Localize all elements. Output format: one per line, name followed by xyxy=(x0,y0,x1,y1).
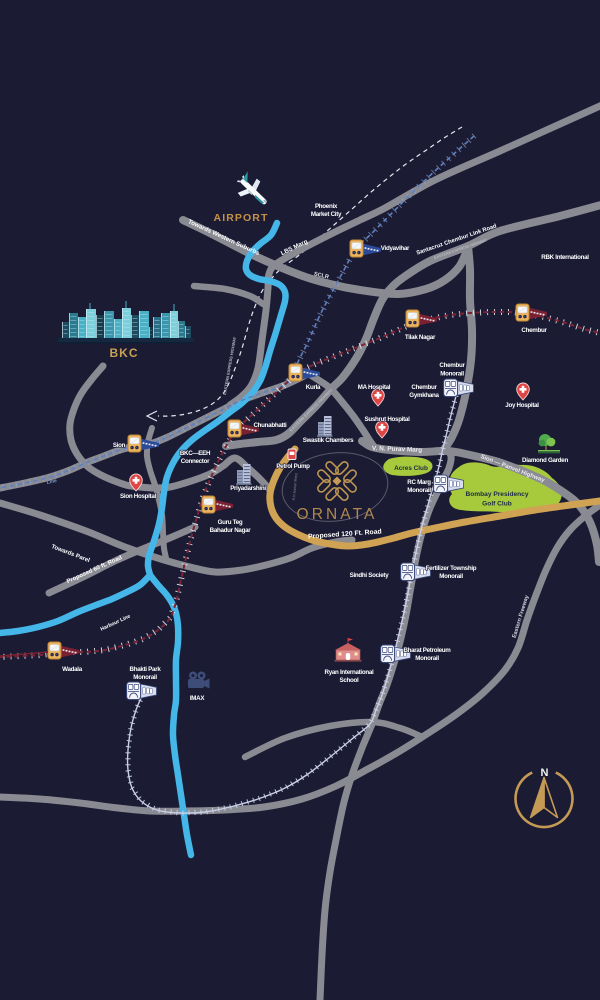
svg-text:ORNATA: ORNATA xyxy=(297,506,378,523)
svg-text:Phoenix: Phoenix xyxy=(315,203,338,210)
svg-text:Bahadur Nagar: Bahadur Nagar xyxy=(210,527,252,534)
svg-text:Swastik Chambers: Swastik Chambers xyxy=(303,437,354,444)
svg-text:N: N xyxy=(541,767,549,779)
svg-text:Chembur: Chembur xyxy=(521,327,547,334)
svg-text:Tilak Nagar: Tilak Nagar xyxy=(405,334,436,341)
svg-text:Monorail: Monorail xyxy=(407,487,431,494)
svg-text:Monorail: Monorail xyxy=(440,371,464,378)
svg-text:Sindhi Society: Sindhi Society xyxy=(350,572,390,579)
svg-text:RBK International: RBK International xyxy=(541,254,589,261)
svg-text:Chembur: Chembur xyxy=(411,384,437,391)
svg-text:Bhakti Park: Bhakti Park xyxy=(130,666,162,673)
svg-text:Ryan International: Ryan International xyxy=(325,669,374,676)
svg-text:Monorail: Monorail xyxy=(133,674,157,681)
svg-text:Priyadarshini: Priyadarshini xyxy=(230,485,266,492)
svg-text:Chunabhatti: Chunabhatti xyxy=(253,422,287,429)
svg-text:Gymkhana: Gymkhana xyxy=(409,392,439,399)
svg-text:RC Marg: RC Marg xyxy=(407,479,431,486)
svg-text:Fertilizer Township: Fertilizer Township xyxy=(426,565,477,572)
svg-text:Sushrut Hospital: Sushrut Hospital xyxy=(364,416,410,423)
svg-text:Monorail: Monorail xyxy=(439,573,463,580)
svg-text:Golf Club: Golf Club xyxy=(482,501,512,508)
svg-text:Diamond Garden: Diamond Garden xyxy=(522,457,568,464)
svg-text:School: School xyxy=(340,677,360,684)
svg-text:Joy Hospital: Joy Hospital xyxy=(505,402,539,409)
svg-text:AIRPORT: AIRPORT xyxy=(214,212,269,224)
svg-text:IMAX: IMAX xyxy=(190,695,206,702)
svg-text:Connector: Connector xyxy=(181,458,210,465)
svg-text:Wadala: Wadala xyxy=(62,666,83,673)
svg-text:Acres Club: Acres Club xyxy=(394,465,428,472)
svg-text:Vidyavihar: Vidyavihar xyxy=(381,245,410,252)
svg-text:Petrol Pump: Petrol Pump xyxy=(276,463,310,470)
svg-text:BKC: BKC xyxy=(110,346,139,360)
svg-text:Monorail: Monorail xyxy=(415,655,439,662)
svg-text:Market City: Market City xyxy=(311,211,342,218)
svg-text:Sion: Sion xyxy=(113,442,126,449)
svg-text:Guru Teg: Guru Teg xyxy=(218,519,243,526)
svg-text:Bharat Petroleum: Bharat Petroleum xyxy=(403,647,451,654)
svg-text:BKC—EEH: BKC—EEH xyxy=(180,450,211,457)
svg-text:Bombay Presidency: Bombay Presidency xyxy=(465,491,528,498)
svg-text:Chembur: Chembur xyxy=(439,362,465,369)
svg-text:Sion Hospital: Sion Hospital xyxy=(120,493,156,500)
svg-text:MA Hospital: MA Hospital xyxy=(358,384,391,391)
svg-text:Kurla: Kurla xyxy=(306,384,321,391)
